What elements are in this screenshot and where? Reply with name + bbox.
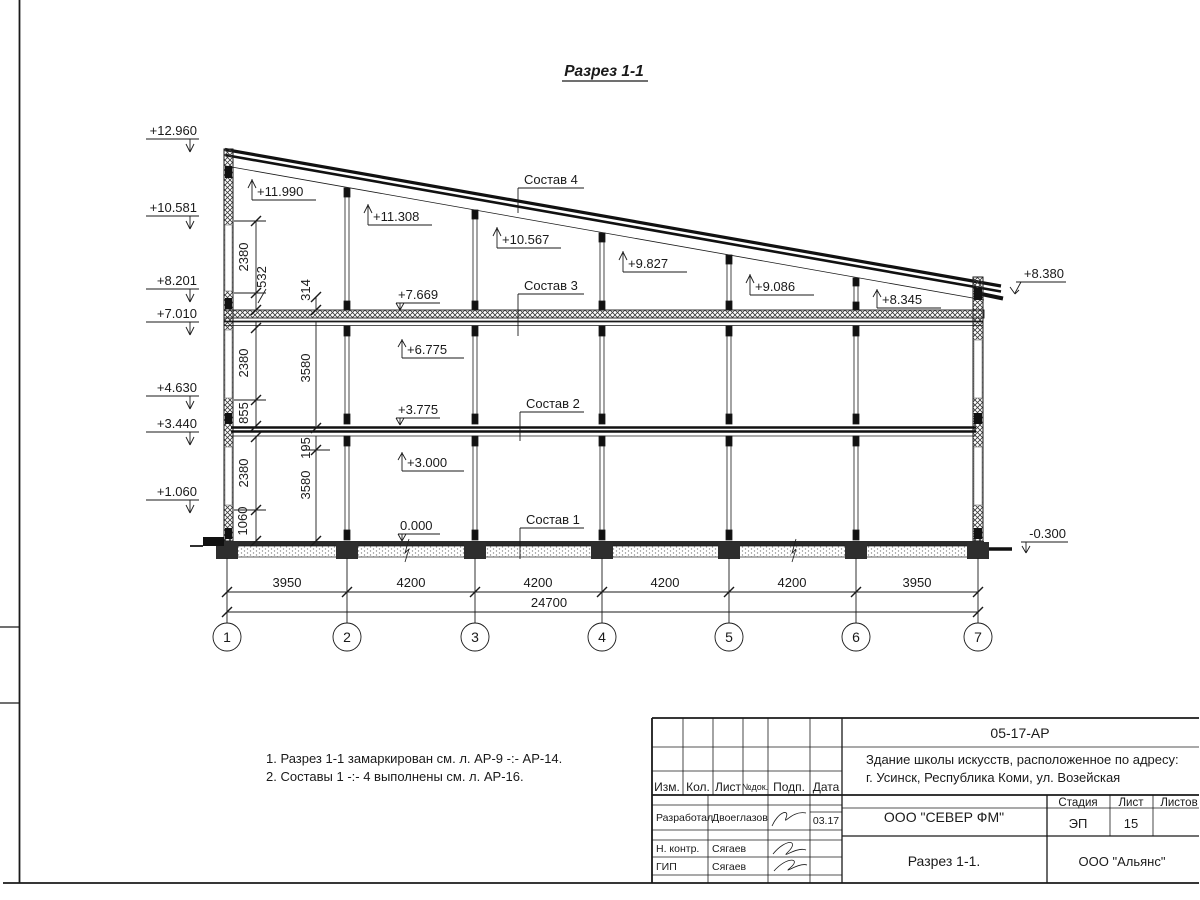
- dim-value: 3580: [298, 354, 313, 383]
- layer-label: Состав 2: [526, 396, 580, 411]
- name-gip: Сягаев: [712, 861, 747, 873]
- axis-bubble: 3: [471, 629, 479, 645]
- foundation-block: [967, 542, 989, 559]
- level-mark: +12.960: [150, 123, 197, 138]
- dim-value: 1060: [235, 507, 250, 536]
- level-mark: -0.300: [1029, 526, 1066, 541]
- level-mark: +7.669: [398, 287, 438, 302]
- stage-value: ЭП: [1069, 816, 1088, 831]
- level-mark: +4.630: [157, 380, 197, 395]
- object-address-line2: г. Усинск, Республика Коми, ул. Возейска…: [866, 770, 1120, 785]
- axis-bubble: 7: [974, 629, 982, 645]
- level-mark: +3.440: [157, 416, 197, 431]
- foundation-block: [336, 542, 358, 559]
- company-name: ООО "СЕВЕР ФМ": [884, 809, 1004, 825]
- level-mark: +11.308: [373, 209, 419, 224]
- role-gip: ГИП: [656, 861, 677, 873]
- layer-label: Состав 4: [524, 172, 578, 187]
- role-ncontrol: Н. контр.: [656, 843, 699, 855]
- sheet-value: 15: [1124, 816, 1138, 831]
- floor-slab-1: [231, 428, 976, 437]
- axis-bubble: 4: [598, 629, 606, 645]
- ground-slab: [190, 537, 1012, 562]
- blueprint-sheet: Разрез 1-1: [0, 0, 1200, 900]
- level-mark: +8.201: [157, 273, 197, 288]
- page-title: Разрез 1-1: [564, 63, 644, 80]
- layer-label: Состав 3: [524, 278, 578, 293]
- sheet-drawing-title: Разрез 1-1.: [908, 853, 981, 869]
- level-mark: +1.060: [157, 484, 197, 499]
- axis-bubble: 2: [343, 629, 351, 645]
- dim-value: 2380: [236, 459, 251, 488]
- notes: 1. Разрез 1-1 замаркирован см. л. АР-9 -…: [266, 751, 562, 784]
- stage-label: Стадия: [1058, 797, 1097, 809]
- layer-label: Состав 1: [526, 512, 580, 527]
- left-wall: [224, 149, 233, 541]
- col-podp: Подп.: [773, 780, 805, 794]
- level-mark: +3.000: [407, 455, 447, 470]
- contractor-name: ООО "Альянс": [1079, 854, 1166, 869]
- col-data: Дата: [813, 780, 840, 794]
- elevation-marks-left: +12.960 +10.581 +8.201 +7.010 +4.630 +3.…: [146, 123, 199, 513]
- sheet-label: Лист: [1119, 797, 1145, 809]
- dim-value: 195: [298, 437, 313, 459]
- floor-slab-2: [224, 310, 984, 326]
- note-line: 2. Составы 1 -:- 4 выполнены см. л. АР-1…: [266, 769, 524, 784]
- axis-bubble: 6: [852, 629, 860, 645]
- col-kol: Кол.: [686, 780, 710, 794]
- name-developer: Двоеглазов: [712, 812, 768, 824]
- note-line: 1. Разрез 1-1 замаркирован см. л. АР-9 -…: [266, 751, 562, 766]
- dim-value: 3580: [298, 471, 313, 500]
- dim-value: 2380: [236, 349, 251, 378]
- dim-value: 532: [254, 266, 269, 288]
- span-dim: 3950: [903, 575, 932, 590]
- level-mark: +9.827: [628, 256, 668, 271]
- level-mark: +9.086: [755, 279, 795, 294]
- foundation-block: [718, 542, 740, 559]
- building-section: [190, 149, 1012, 562]
- col-izm: Изм.: [654, 780, 680, 794]
- axis-bubble: 5: [725, 629, 733, 645]
- name-ncontrol: Сягаев: [712, 843, 747, 855]
- span-dim: 4200: [397, 575, 426, 590]
- foundation-block: [464, 542, 486, 559]
- drawing-title: Разрез 1-1: [562, 63, 648, 81]
- roof-slab: [225, 150, 1003, 301]
- level-mark: +3.775: [398, 402, 438, 417]
- level-mark: 0.000: [400, 518, 433, 533]
- level-mark: +8.345: [882, 292, 922, 307]
- elevation-marks-roof: +11.990 +11.308 +10.567 +9.827 +9.086 +8…: [248, 179, 941, 308]
- span-dim: 4200: [524, 575, 553, 590]
- level-mark: +10.581: [150, 200, 197, 215]
- level-mark: +10.567: [502, 232, 549, 247]
- elevation-marks-right: +8.380 -0.300: [1010, 266, 1068, 553]
- level-mark: +7.010: [157, 306, 197, 321]
- layer-labels: Состав 4 Состав 3 Состав 2 Состав 1: [518, 172, 584, 559]
- col-ndok: №док.: [742, 782, 768, 792]
- role-developer: Разработал: [656, 812, 713, 824]
- vertical-dim-chain-a: 2380 532 2380 855 2380 1060: [234, 216, 269, 546]
- dim-value: 855: [236, 402, 251, 424]
- sheets-label: Листов: [1160, 797, 1197, 809]
- signature-icon: [772, 812, 806, 826]
- axis-bubble: 1: [223, 629, 231, 645]
- dim-value: 2380: [236, 243, 251, 272]
- foundation-block: [591, 542, 613, 559]
- span-dim: 3950: [273, 575, 302, 590]
- col-list: Лист: [715, 780, 742, 794]
- foundation-block: [845, 542, 867, 559]
- span-dim: 4200: [778, 575, 807, 590]
- dim-value: 314: [298, 279, 313, 301]
- doc-number: 05-17-АР: [990, 725, 1049, 741]
- title-block: 05-17-АР Здание школы искусств, располож…: [652, 718, 1199, 883]
- span-dim: 4200: [651, 575, 680, 590]
- vertical-dim-chain-b: 314 3580 195 3580: [298, 279, 330, 546]
- level-mark: +11.990: [257, 184, 303, 199]
- grid-axes: 1 2 3 4 5 6 7: [213, 623, 992, 651]
- total-dim: 24700: [531, 595, 567, 610]
- level-mark: +8.380: [1024, 266, 1064, 281]
- bottom-dimensions: 3950 4200 4200 4200 4200 3950 24700: [222, 558, 983, 623]
- object-address-line1: Здание школы искусств, расположенное по …: [866, 752, 1179, 767]
- date-developer: 03.17: [813, 815, 839, 827]
- level-mark: +6.775: [407, 342, 447, 357]
